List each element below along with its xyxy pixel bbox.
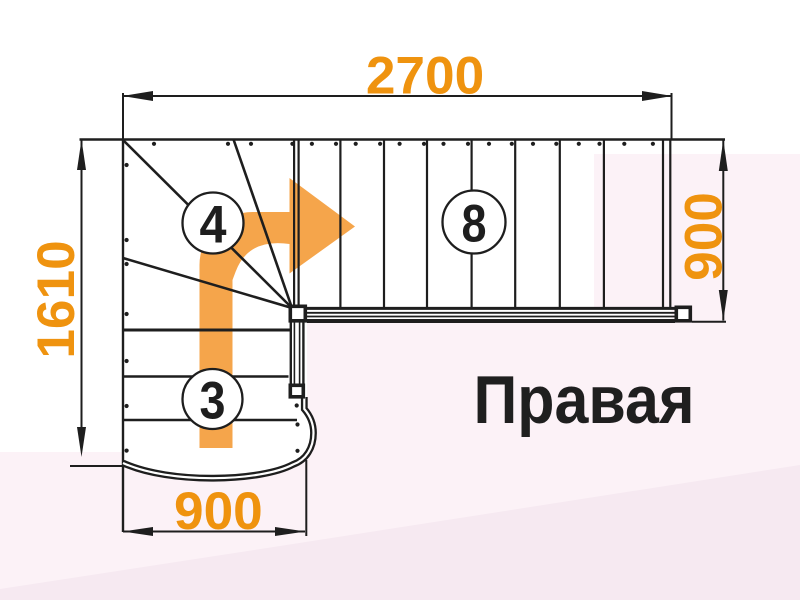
svg-text:8: 8 — [462, 194, 487, 253]
svg-text:900: 900 — [675, 192, 734, 281]
svg-text:1610: 1610 — [27, 240, 86, 358]
svg-text:900: 900 — [174, 482, 263, 541]
svg-text:Правая: Правая — [474, 362, 695, 438]
svg-text:4: 4 — [200, 195, 227, 254]
svg-text:2700: 2700 — [366, 47, 484, 106]
svg-text:3: 3 — [200, 371, 226, 430]
